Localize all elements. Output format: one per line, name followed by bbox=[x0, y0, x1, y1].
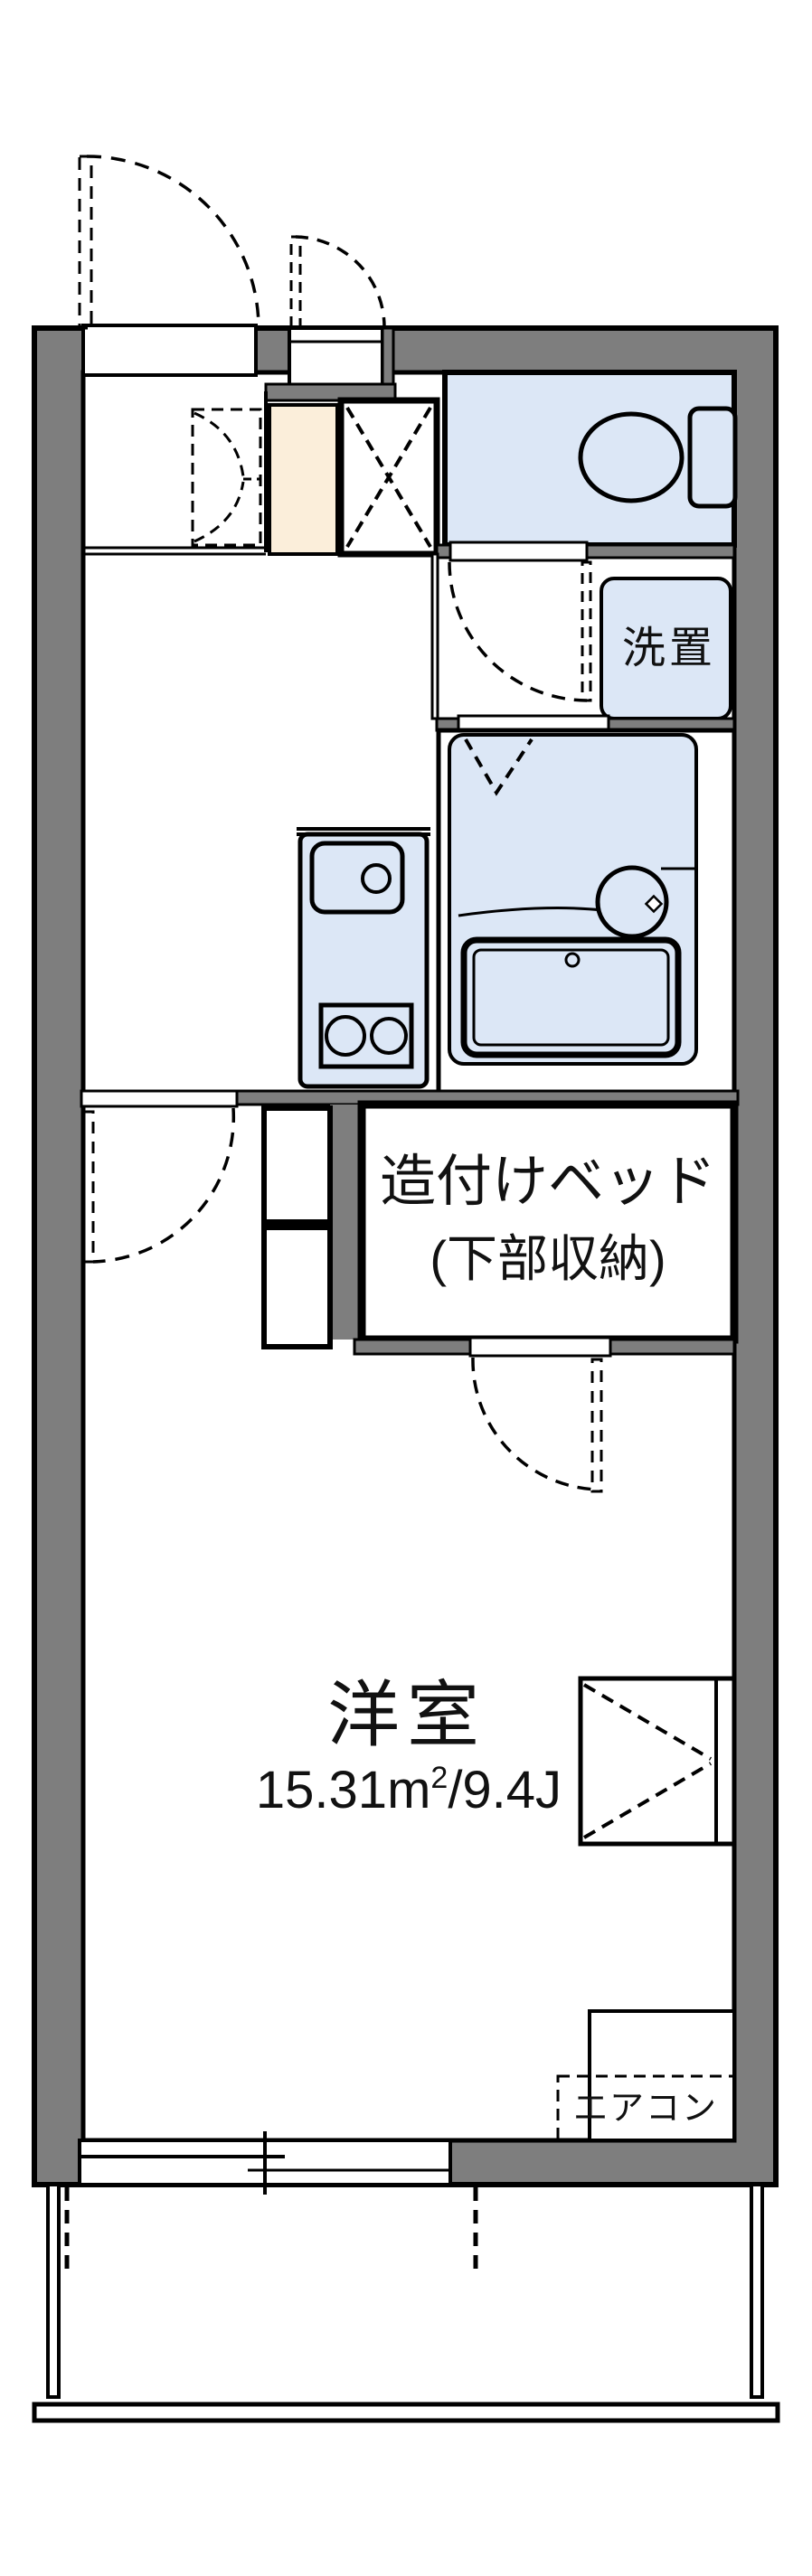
sink-faucet-icon bbox=[363, 865, 390, 892]
balcony-side-wall-right bbox=[751, 2185, 762, 2397]
balcony-side-wall-left bbox=[48, 2185, 59, 2397]
toilet-door-opening bbox=[450, 542, 587, 560]
side-door-leaf bbox=[80, 156, 91, 328]
entrance-area bbox=[80, 156, 395, 400]
bathroom bbox=[437, 716, 734, 1094]
kitchen bbox=[297, 829, 430, 1086]
aircon-label: エアコン bbox=[573, 2090, 718, 2128]
bed-side-wall bbox=[330, 1105, 362, 1340]
room-label: 洋室 bbox=[327, 1675, 486, 1755]
toilet-bowl-icon bbox=[581, 414, 682, 501]
hall-partition-line bbox=[432, 554, 438, 719]
front-door-swing-arc bbox=[296, 237, 384, 327]
bed-label-line2: (下部収納) bbox=[430, 1230, 666, 1287]
side-cabinet-upper bbox=[264, 1108, 330, 1222]
front-door-recess bbox=[289, 328, 382, 386]
entrance-side-opening bbox=[83, 325, 256, 375]
stove-burner-right bbox=[372, 1019, 406, 1053]
side-cabinet-lower bbox=[264, 1227, 330, 1347]
balcony-railing bbox=[34, 2404, 778, 2421]
stove-burner-left bbox=[326, 1017, 364, 1055]
room-area-label: 15.31m2/9.4J bbox=[256, 1761, 562, 1819]
built-in-bed bbox=[362, 1105, 734, 1340]
floor-plan: 洗置 造付けベッド (下部収納) bbox=[0, 0, 812, 2576]
washer-label: 洗置 bbox=[622, 625, 716, 672]
hall-door-opening bbox=[81, 1091, 237, 1106]
front-door-leaf bbox=[291, 237, 300, 327]
closet bbox=[581, 1678, 734, 1844]
side-door-swing-arc bbox=[87, 156, 259, 328]
floor-plan-drawing: 洗置 造付けベッド (下部収納) bbox=[0, 0, 812, 2576]
bathtub-drain-dot bbox=[566, 954, 579, 966]
bed-label-line1: 造付けベッド bbox=[380, 1151, 716, 1213]
toilet-tank-icon bbox=[690, 409, 735, 506]
entrance-floor-strip bbox=[269, 405, 337, 554]
bedroom-door-opening bbox=[470, 1338, 610, 1356]
